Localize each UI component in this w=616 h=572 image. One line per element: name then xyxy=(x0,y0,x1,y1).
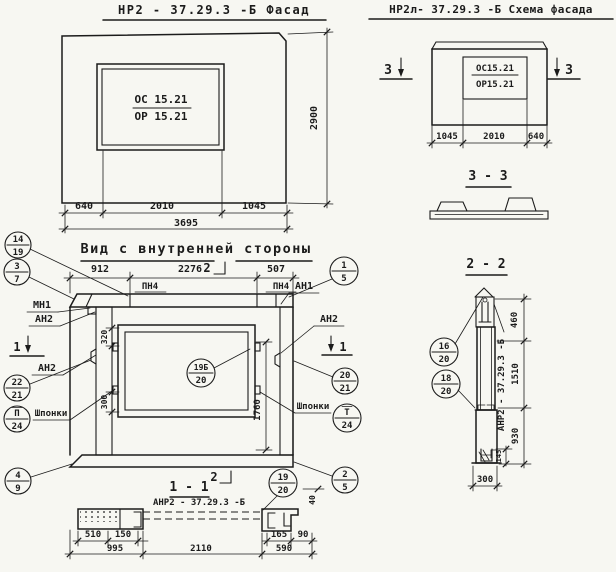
dim-640: 640 xyxy=(75,201,93,212)
svg-text:20: 20 xyxy=(278,486,289,496)
svg-text:5: 5 xyxy=(341,274,346,284)
inner-dimensions-top: 912 2276 507 xyxy=(64,264,299,293)
svg-text:20: 20 xyxy=(441,387,452,397)
dim-912: 912 xyxy=(91,264,109,275)
mn1-label: МН1 xyxy=(27,300,90,312)
svg-text:МН1: МН1 xyxy=(33,300,51,311)
callout-p-24: П 24 xyxy=(4,406,30,432)
callout-19b-20: 19Б 20 xyxy=(187,349,250,387)
section-1-1-view: 1 - 1 2 АНР2 - 37.29.3 -Б 19 20 40 xyxy=(65,469,324,559)
section-2-2-view: 2 - 2 АНР2 - 37.29.3 -Б xyxy=(430,257,531,491)
dim-1760: 1760 xyxy=(253,399,263,421)
svg-text:165: 165 xyxy=(271,530,287,540)
section-3-marker-right: 3 xyxy=(548,58,580,79)
svg-text:2: 2 xyxy=(210,470,217,484)
svg-text:22: 22 xyxy=(12,378,23,388)
callout-16-20: 16 20 xyxy=(430,297,483,366)
section-1-1-dimensions: 510 150 165 90 995 2110 590 xyxy=(65,530,317,559)
section-2-marker-bottom: 2 xyxy=(210,470,231,484)
facade-title: НР2 - 37.29.3 -Б Фасад xyxy=(118,3,310,17)
svg-text:14: 14 xyxy=(13,235,24,245)
facade-window-opening: ОС 15.21 ОР 15.21 xyxy=(97,64,224,150)
section-1-1-label: АНР2 - 37.29.3 -Б xyxy=(153,498,246,508)
technical-drawing: НР2 - 37.29.3 -Б Фасад ОС 15.21 ОР 15.21… xyxy=(0,0,616,572)
dim-1045: 1045 xyxy=(242,201,266,212)
dim-320: 320 xyxy=(100,330,109,345)
right-column xyxy=(280,307,293,455)
callout-20-21: 20 21 xyxy=(294,361,358,394)
svg-text:510: 510 xyxy=(85,530,101,540)
svg-text:4: 4 xyxy=(15,471,21,481)
product-mark-os: ОС 15.21 xyxy=(135,93,188,106)
pn4-label-left: ПН4 xyxy=(135,282,166,292)
svg-text:1: 1 xyxy=(339,340,346,354)
section-2-2-label: АНР2 - 37.29.3 -Б xyxy=(497,338,507,431)
facade-dimension-height: 2900 xyxy=(288,28,333,208)
schema-dimensions: 1045 2010 640 xyxy=(427,100,552,148)
svg-text:Шпонки: Шпонки xyxy=(297,402,330,412)
svg-text:2110: 2110 xyxy=(190,544,212,554)
svg-text:21: 21 xyxy=(12,391,23,401)
svg-text:24: 24 xyxy=(12,422,23,432)
facade-dimensions-bottom: 640 2010 1045 3695 xyxy=(59,151,293,233)
window-frame-inner xyxy=(125,332,248,410)
svg-text:20: 20 xyxy=(340,371,351,381)
svg-text:995: 995 xyxy=(107,544,123,554)
svg-text:24: 24 xyxy=(342,421,353,431)
section-1-1-geometry xyxy=(78,509,298,531)
svg-text:16: 16 xyxy=(439,342,450,352)
product-mark-or: ОР15.21 xyxy=(476,80,514,90)
section-3-3-title: 3 - 3 xyxy=(468,169,507,184)
svg-text:1: 1 xyxy=(341,261,346,271)
dim-1045: 1045 xyxy=(436,132,458,142)
bottom-bar xyxy=(70,455,293,467)
svg-text:145: 145 xyxy=(495,450,503,463)
svg-text:90: 90 xyxy=(298,530,309,540)
facade-view: НР2 - 37.29.3 -Б Фасад ОС 15.21 ОР 15.21… xyxy=(59,3,333,233)
an2-label-right: АН2 xyxy=(281,314,344,353)
inner-panel xyxy=(70,294,293,467)
drawing-sheet: НР2 - 37.29.3 -Б Фасад ОС 15.21 ОР 15.21… xyxy=(0,0,616,572)
svg-text:930: 930 xyxy=(511,428,521,444)
dim-3695: 3695 xyxy=(174,218,198,229)
dim-300: 300 xyxy=(100,395,109,410)
svg-text:20: 20 xyxy=(196,376,207,386)
svg-text:1510: 1510 xyxy=(511,363,521,385)
profile-right-block xyxy=(505,198,536,211)
top-bar xyxy=(70,294,293,307)
section-2-2-title: 2 - 2 xyxy=(466,257,505,272)
svg-text:3: 3 xyxy=(384,63,392,78)
schema-panel: ОС15.21 ОР15.21 xyxy=(432,42,547,125)
section-2-marker-top: 2 xyxy=(203,261,225,275)
section-3-3-view: 3 - 3 xyxy=(430,169,548,219)
inner-view-title: Вид с внутренней стороны xyxy=(80,241,311,257)
svg-text:460: 460 xyxy=(510,312,520,328)
callout-t-24: Т 24 xyxy=(333,404,361,432)
schema-title: НР2л- 37.29.3 -Б Схема фасада xyxy=(389,3,593,16)
pn4-label-right: ПН4 xyxy=(266,282,296,292)
left-column xyxy=(96,307,112,455)
product-mark-os: ОС15.21 xyxy=(476,64,514,74)
svg-text:7: 7 xyxy=(14,275,19,285)
svg-text:19: 19 xyxy=(278,473,289,483)
callout-4-9: 4 9 xyxy=(5,464,72,494)
svg-text:19Б: 19Б xyxy=(194,363,209,372)
callout-19-20: 19 20 xyxy=(263,469,297,510)
profile-bar xyxy=(430,211,548,219)
svg-text:ПН4: ПН4 xyxy=(273,282,290,292)
right-sill-block xyxy=(262,509,298,531)
svg-text:Шпонки: Шпонки xyxy=(35,409,68,419)
dim-2010: 2010 xyxy=(483,132,505,142)
shponki-label-right: Шпонки xyxy=(260,392,331,413)
panel-body-section xyxy=(477,327,495,410)
section-1-1-title: 1 - 1 xyxy=(169,480,208,495)
section-1-marker-left: 1 xyxy=(10,336,44,356)
svg-text:300: 300 xyxy=(477,475,493,485)
dim-2276: 2276 xyxy=(178,264,202,275)
svg-text:9: 9 xyxy=(15,484,20,494)
inner-view: Вид с внутренней стороны 2 912 2276 507 … xyxy=(4,232,361,494)
profile-left-block xyxy=(437,202,467,211)
callout-2-5: 2 5 xyxy=(294,462,358,493)
svg-text:5: 5 xyxy=(342,483,347,493)
dim-2900: 2900 xyxy=(309,106,320,130)
product-mark-or: ОР 15.21 xyxy=(135,110,188,123)
window-dimensions: 320 300 1760 xyxy=(100,325,272,453)
svg-text:1: 1 xyxy=(13,340,20,354)
an2-label-left-bottom: АН2 xyxy=(32,355,96,375)
svg-text:2: 2 xyxy=(342,470,347,480)
dim-640: 640 xyxy=(528,132,544,142)
dim-2010: 2010 xyxy=(150,201,174,212)
svg-text:590: 590 xyxy=(276,544,292,554)
svg-text:П: П xyxy=(14,409,19,419)
svg-text:19: 19 xyxy=(13,248,24,258)
svg-text:20: 20 xyxy=(439,355,450,365)
svg-text:3: 3 xyxy=(14,262,19,272)
section-1-marker-right: 1 xyxy=(322,336,352,355)
dim-40: 40 xyxy=(303,486,324,505)
section-3-marker-left: 3 xyxy=(380,58,412,79)
svg-text:АН2: АН2 xyxy=(35,314,53,325)
schema-view: НР2л- 37.29.3 -Б Схема фасада ОС15.21 ОР… xyxy=(369,3,613,219)
an2-label-left-top: АН2 xyxy=(29,312,95,326)
dim-507: 507 xyxy=(267,264,285,275)
svg-text:Т: Т xyxy=(344,408,350,418)
svg-text:3: 3 xyxy=(565,63,573,78)
callout-18-20: 18 20 xyxy=(432,370,475,408)
svg-text:21: 21 xyxy=(340,384,351,394)
svg-text:АН2: АН2 xyxy=(38,363,56,374)
svg-text:18: 18 xyxy=(441,374,452,384)
svg-text:150: 150 xyxy=(115,530,131,540)
window-frame-outer xyxy=(118,325,255,417)
svg-text:ПН4: ПН4 xyxy=(142,282,159,292)
svg-text:2: 2 xyxy=(203,261,210,275)
svg-text:40: 40 xyxy=(308,495,317,505)
svg-text:АН2: АН2 xyxy=(320,314,338,325)
